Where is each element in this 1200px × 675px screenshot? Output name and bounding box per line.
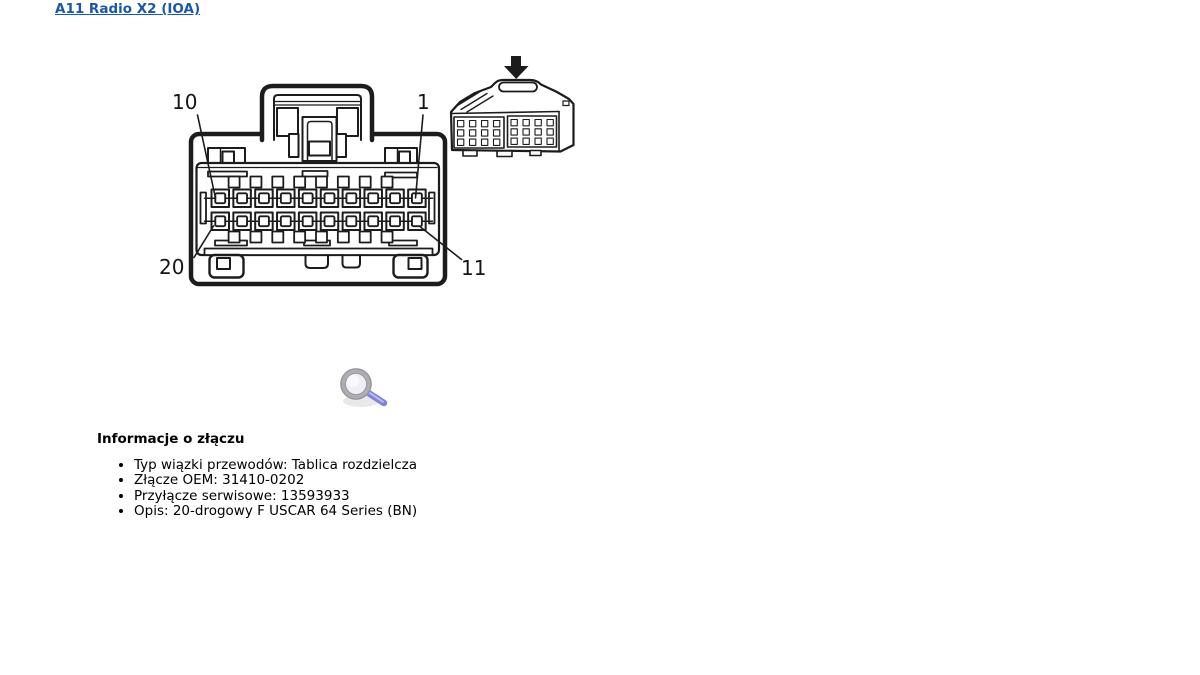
connector-title-link[interactable]: A11 Radio X2 (IOA) (55, 1, 200, 17)
connector-diagram (150, 45, 620, 305)
connector-info-section: Informacje o złączu Typ wiązki przewodów… (97, 431, 617, 520)
info-item-oem: Złącze OEM: 31410-0202 (134, 473, 617, 488)
connector-3d-view (451, 56, 574, 157)
pin-label-1: 1 (417, 92, 430, 113)
info-item-harness: Typ wiązki przewodów: Tablica rozdzielcz… (134, 458, 617, 473)
pin-label-11: 11 (461, 258, 486, 279)
info-item-service: Przyłącze serwisowe: 13593933 (134, 489, 617, 504)
magnifier-icon[interactable] (334, 368, 392, 412)
down-arrow-icon (504, 56, 529, 79)
info-heading: Informacje o złączu (97, 431, 617, 447)
service-info-page: A11 Radio X2 (IOA) (0, 0, 1200, 675)
info-item-desc: Opis: 20-drogowy F USCAR 64 Series (BN) (134, 504, 617, 519)
info-list: Typ wiązki przewodów: Tablica rozdzielcz… (97, 458, 617, 520)
pin-label-10: 10 (172, 92, 197, 113)
connector-front-view (191, 86, 462, 284)
pin-label-20: 20 (159, 257, 184, 278)
